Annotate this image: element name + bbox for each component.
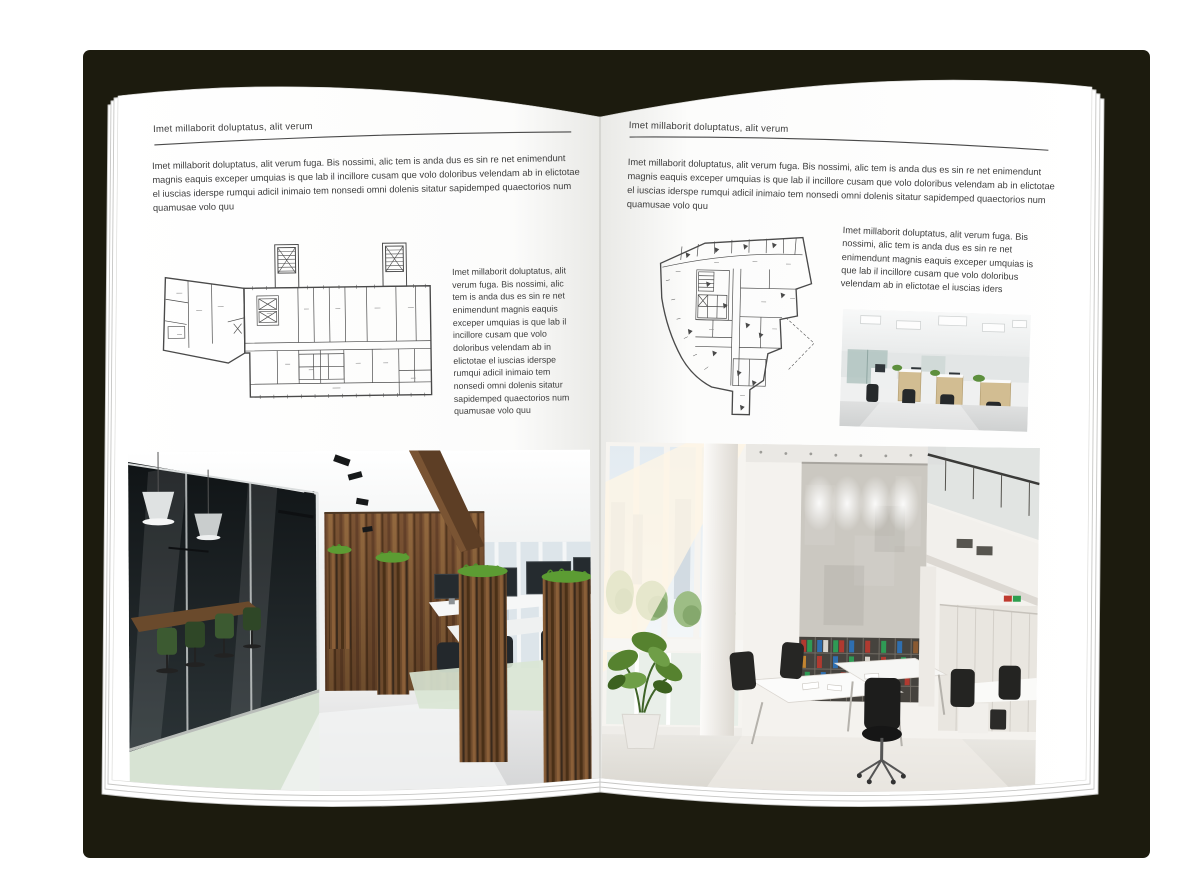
office-photo-atrium-art (601, 442, 1040, 800)
office-photo-small-art (839, 309, 1031, 432)
office-photo-loft (128, 450, 592, 792)
office-photo-small (839, 309, 1031, 432)
left-running-header-block: Imet millaborit doluptatus, alit verum (153, 116, 583, 147)
floor-plan-right (644, 222, 830, 424)
right-running-header-block: Imet millaborit doluptatus, alit verum (628, 120, 1058, 153)
right-side-text: Imet millaborit doluptatus, alit verum f… (840, 224, 1042, 298)
office-photo-atrium (601, 442, 1040, 800)
mockup-stage: Imet millaborit doluptatus, alit verum I… (0, 0, 1200, 891)
right-intro-paragraph: Imet millaborit doluptatus, alit verum f… (627, 156, 1060, 222)
left-intro-paragraph: Imet millaborit doluptatus, alit verum f… (152, 152, 587, 216)
floor-plan-left (150, 224, 447, 416)
left-side-text: Imet millaborit doluptatus, alit verum f… (452, 264, 574, 418)
office-photo-loft-art (128, 450, 592, 792)
